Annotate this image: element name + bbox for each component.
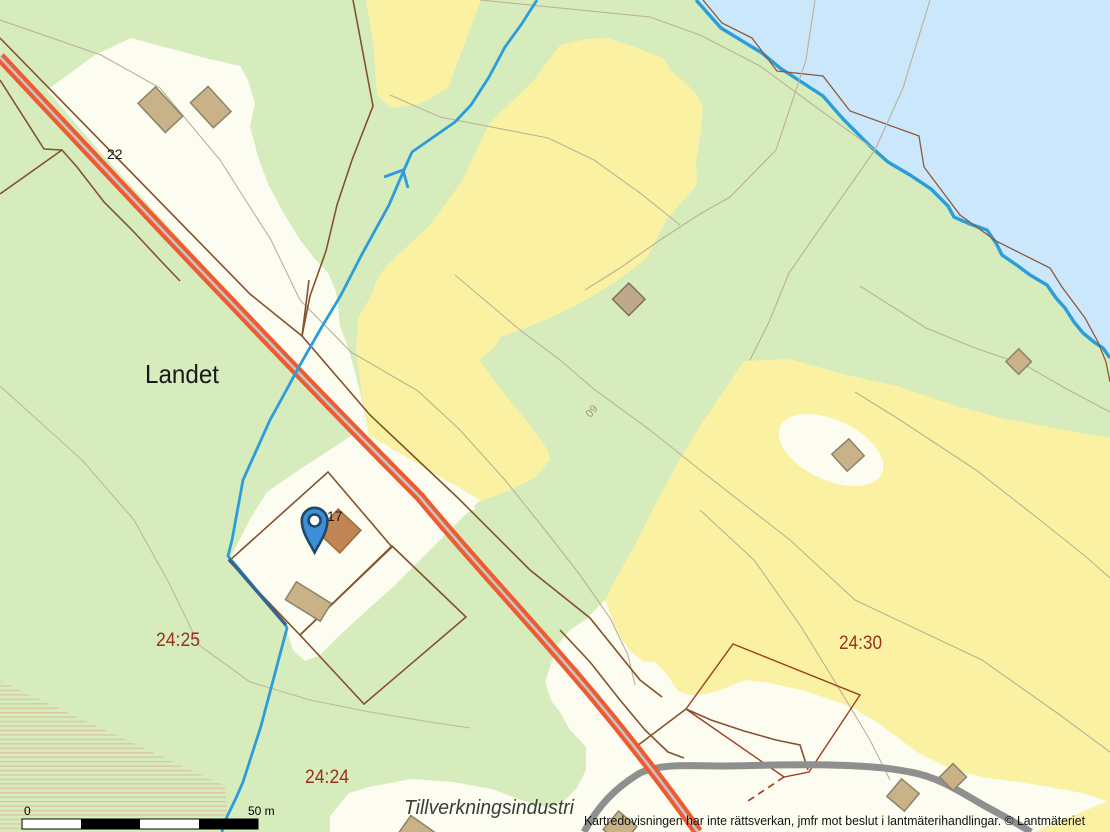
svg-text:24:25: 24:25 [156,630,200,651]
svg-text:22: 22 [107,146,123,162]
svg-text:50 m: 50 m [248,804,275,818]
svg-text:Kartredovisningen har inte rät: Kartredovisningen har inte rättsverkan, … [584,813,1085,828]
svg-text:24:24: 24:24 [305,767,349,788]
svg-text:24:30: 24:30 [839,633,882,654]
svg-text:17: 17 [327,508,343,524]
svg-text:Landet: Landet [145,359,220,389]
svg-text:Tillverkningsindustri: Tillverkningsindustri [404,797,575,819]
svg-text:0: 0 [24,804,31,818]
